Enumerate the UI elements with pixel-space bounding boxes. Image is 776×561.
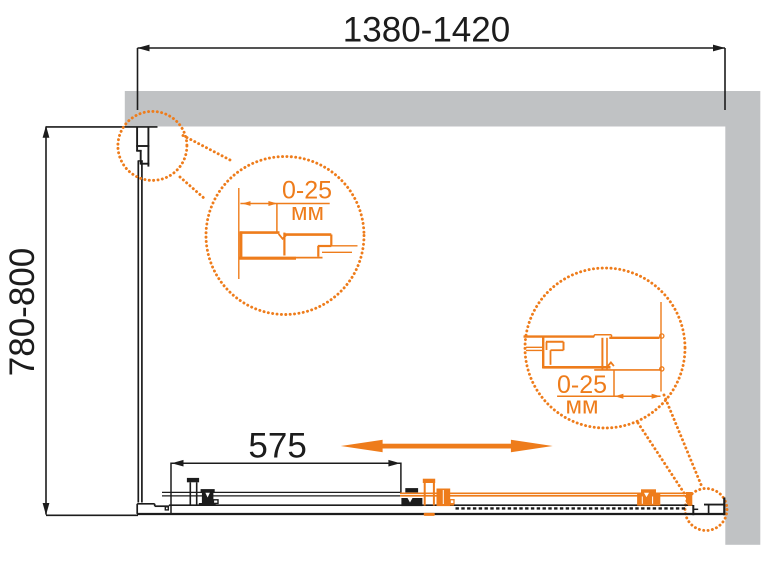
svg-text:1380-1420: 1380-1420 xyxy=(343,11,510,50)
svg-text:575: 575 xyxy=(248,427,306,466)
svg-text:мм: мм xyxy=(566,393,599,420)
svg-text:780-800: 780-800 xyxy=(3,248,42,376)
svg-text:мм: мм xyxy=(291,199,324,226)
